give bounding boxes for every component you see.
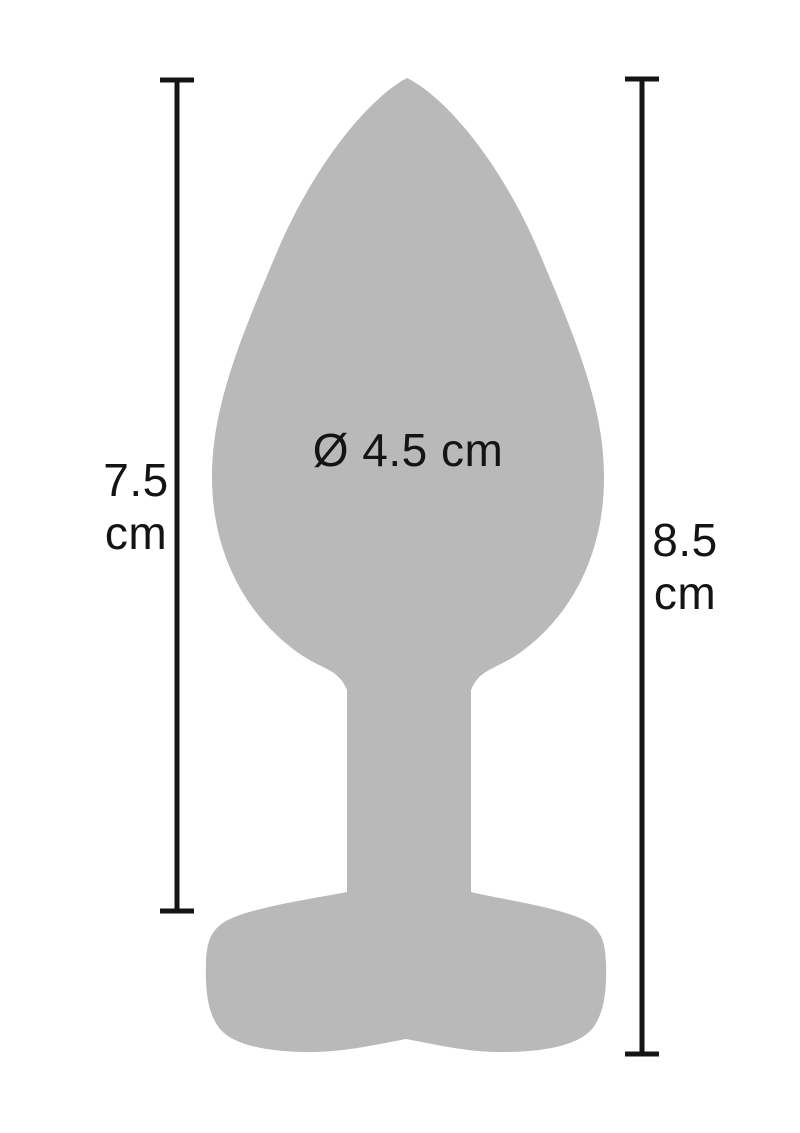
right-measurement-label: 8.5 cm [637,514,733,621]
left-measurement-unit: cm [88,507,184,560]
product-dimension-diagram: 7.5 cm 8.5 cm Ø 4.5 cm [0,0,800,1133]
right-measurement-unit: cm [637,567,733,620]
plug-silhouette [206,78,606,1052]
left-measurement-value: 7.5 [88,454,184,507]
diameter-label: Ø 4.5 cm [260,424,556,477]
right-measurement-value: 8.5 [637,514,733,567]
left-measurement-label: 7.5 cm [88,454,184,561]
